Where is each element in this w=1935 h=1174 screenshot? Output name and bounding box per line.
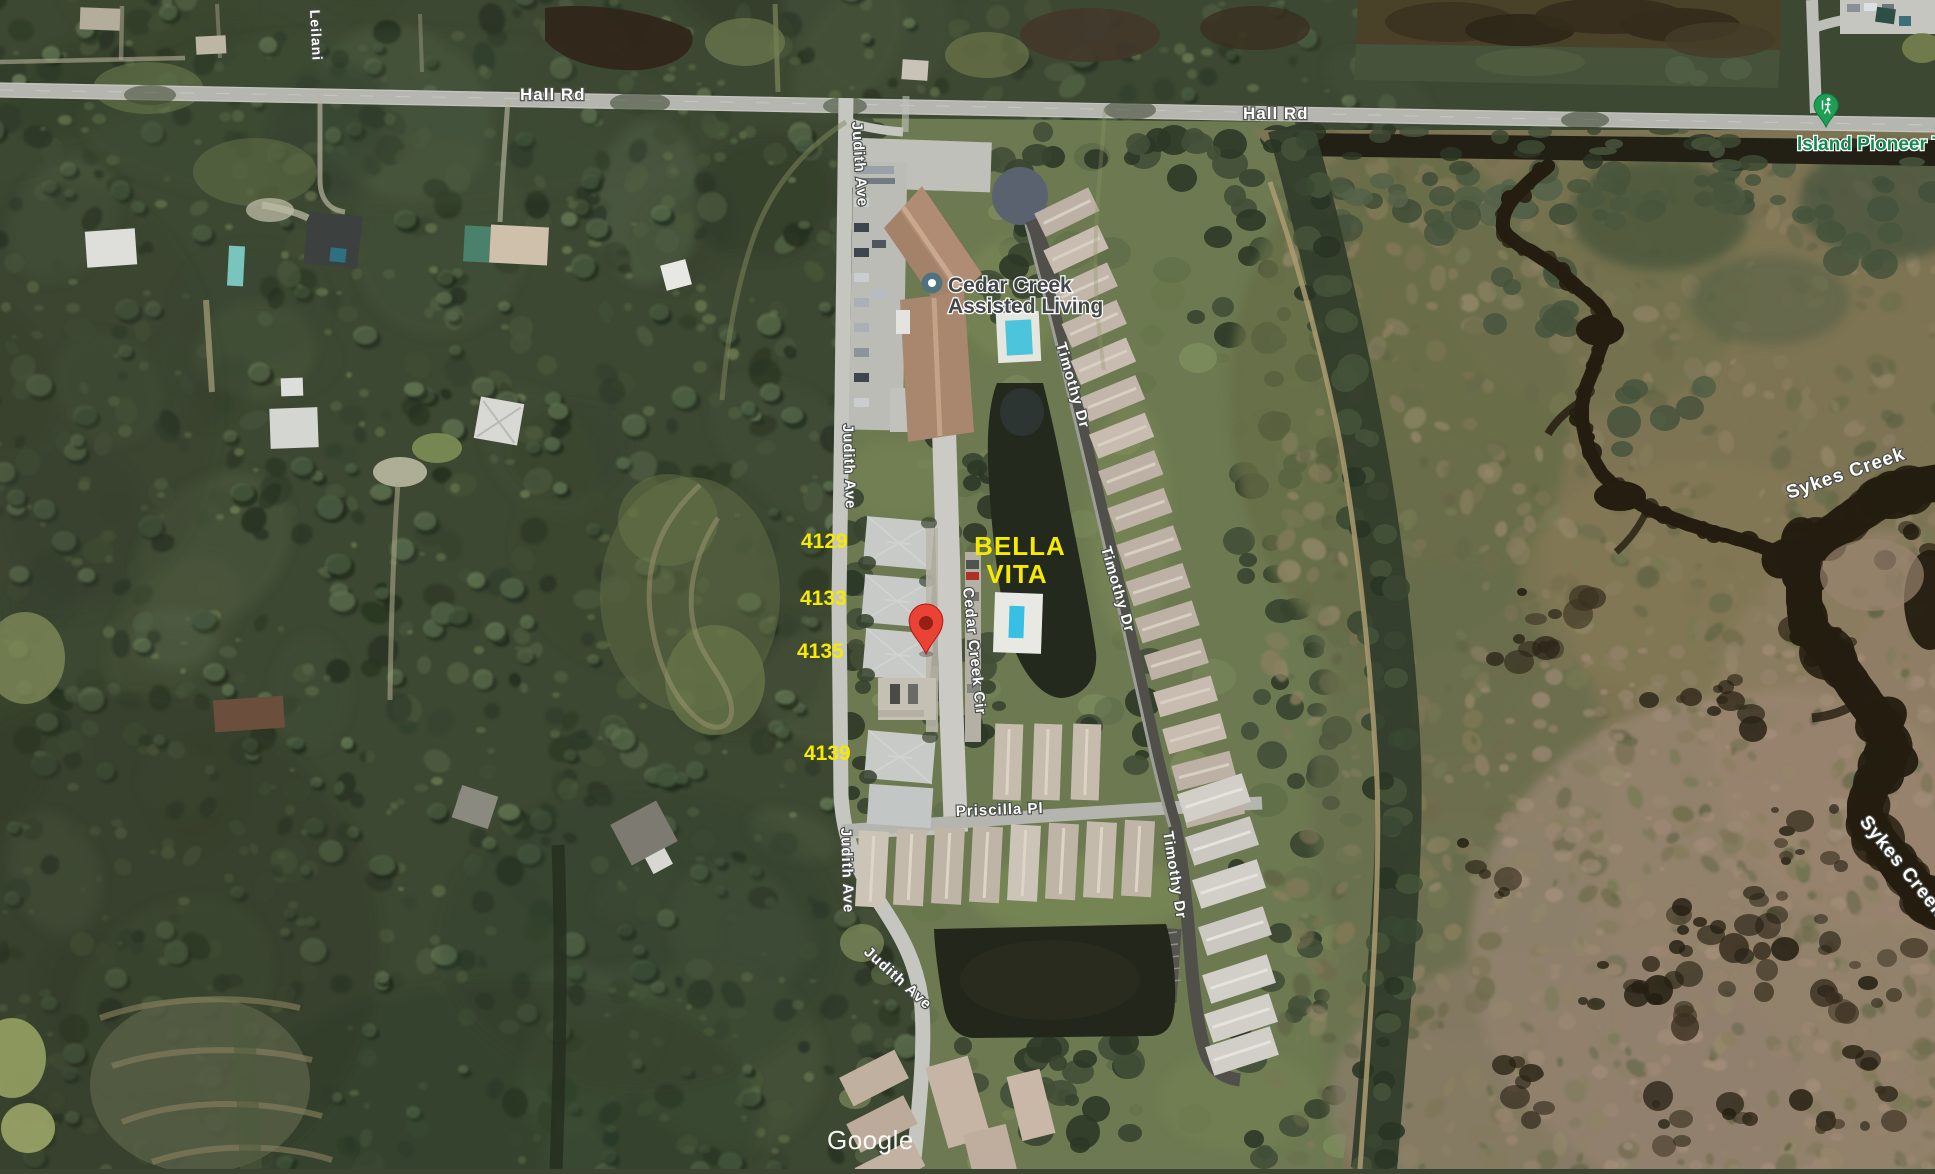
svg-text:Hall Rd: Hall Rd — [1243, 104, 1309, 123]
svg-text:Judith Ave: Judith Ave — [839, 424, 859, 510]
svg-text:Hall Rd: Hall Rd — [520, 85, 586, 104]
svg-text:Leilani: Leilani — [307, 9, 326, 61]
svg-text:Priscilla Pl: Priscilla Pl — [956, 800, 1044, 820]
svg-text:4133: 4133 — [800, 587, 847, 610]
svg-text:Cedar Creek: Cedar Creek — [948, 274, 1072, 297]
svg-text:4129: 4129 — [801, 530, 848, 553]
svg-text:Island Pioneer Tra: Island Pioneer Tra — [1797, 134, 1935, 155]
svg-text:Judith Ave: Judith Ave — [837, 828, 857, 914]
svg-text:Assisted Living: Assisted Living — [948, 295, 1103, 318]
svg-text:Google: Google — [827, 1125, 914, 1155]
svg-text:4135: 4135 — [797, 640, 844, 663]
svg-text:VITA: VITA — [986, 559, 1047, 589]
svg-text:BELLA: BELLA — [974, 531, 1066, 561]
svg-text:4139: 4139 — [804, 742, 851, 765]
